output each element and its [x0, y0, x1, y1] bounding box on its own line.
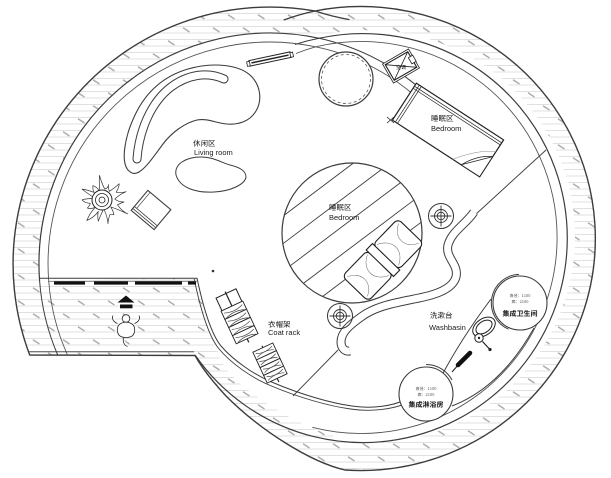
svg-text:Washbasin: Washbasin — [429, 323, 466, 332]
svg-text:Living room: Living room — [194, 148, 233, 157]
svg-text:Coat rack: Coat rack — [268, 328, 300, 337]
svg-text:Bedroom: Bedroom — [431, 124, 461, 133]
svg-text:Bedroom: Bedroom — [329, 213, 359, 222]
